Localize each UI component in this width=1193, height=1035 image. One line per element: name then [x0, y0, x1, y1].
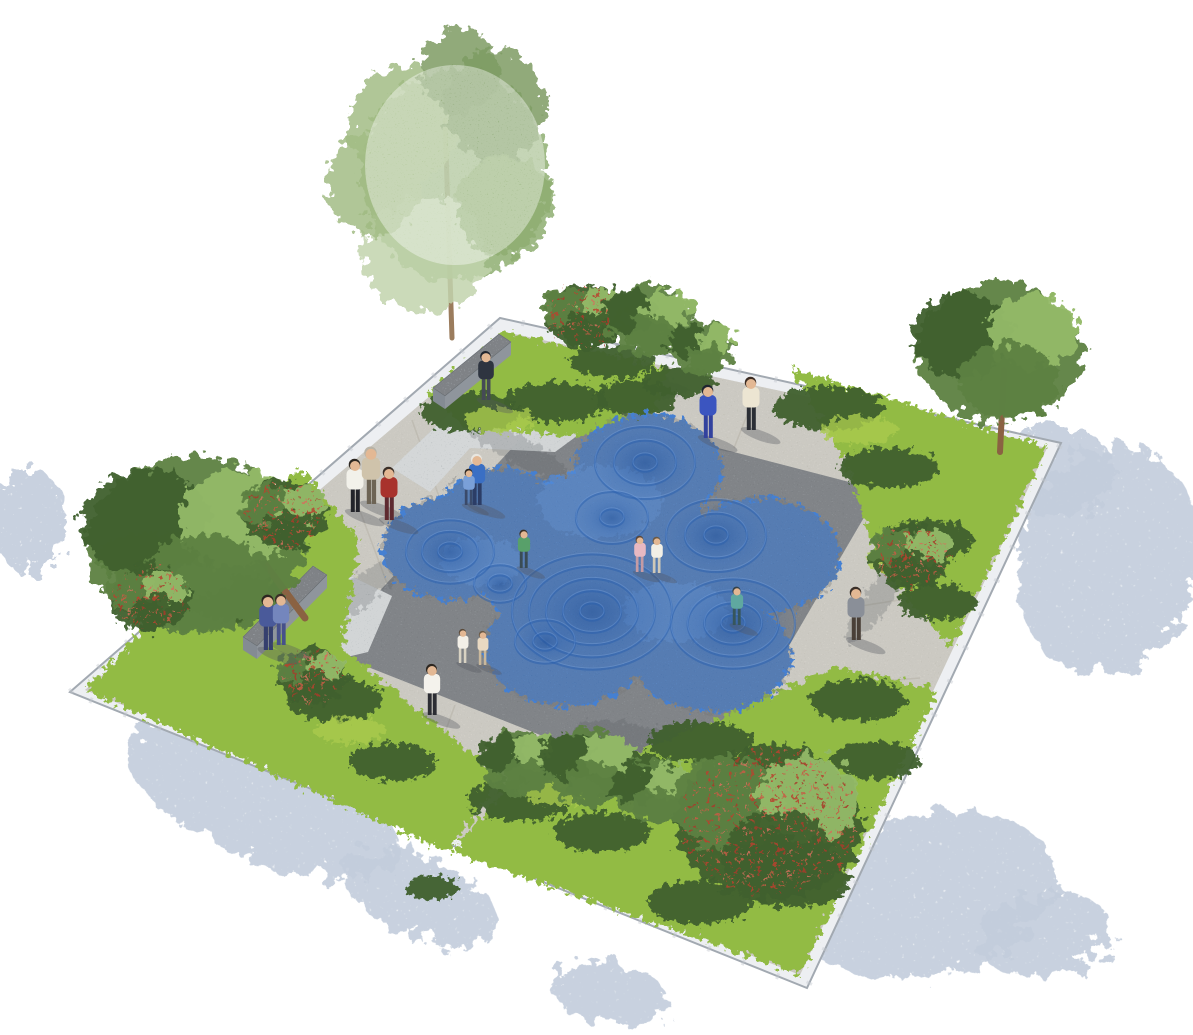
person-at-wall-leg: [487, 378, 491, 400]
child-pair-a-head: [460, 630, 466, 636]
woman-white-top-head: [746, 379, 756, 389]
couple-figure-b-torso: [273, 604, 289, 624]
tree-canopy: [686, 345, 724, 374]
man-walking-leg: [433, 692, 437, 715]
woman-white-top-torso: [743, 387, 760, 408]
woman-red-dress-torso: [381, 477, 398, 498]
child-pair-b-leg: [479, 650, 482, 665]
man-beige-leg: [372, 478, 376, 504]
shrub-clump: [406, 876, 458, 900]
birch-light-speckle: [365, 65, 545, 265]
child-with-photographer-torso: [463, 476, 475, 490]
woman-with-basket-head: [851, 589, 861, 599]
man-beige-torso: [362, 458, 380, 480]
tree-canopy: [958, 344, 1059, 420]
woman-white-top-leg: [752, 406, 756, 430]
man-white-shirt-leg: [356, 488, 360, 512]
man-walking-leg: [428, 692, 432, 715]
child-pair-a-leg: [464, 648, 467, 663]
woman-with-basket-leg: [852, 616, 856, 640]
person-at-wall-leg: [482, 378, 486, 400]
apple-fruit-dots: [112, 567, 188, 629]
grass-tuft: [314, 717, 386, 743]
woman-white-top-leg: [747, 406, 751, 430]
shrub-clump: [348, 743, 436, 781]
woman-with-basket-leg: [857, 616, 861, 640]
child-green-torso: [518, 537, 530, 552]
tree-canopy: [500, 758, 548, 794]
child-pair-b-torso: [478, 637, 489, 650]
child-teal-leg: [738, 608, 741, 625]
person-at-wall-head: [481, 353, 490, 362]
photographer-blue-leg: [478, 482, 482, 505]
plaza-rendering: [0, 0, 1193, 1035]
person-blue-robe-leg: [704, 414, 708, 438]
tree-canopy: [565, 761, 620, 802]
man-walking-torso: [424, 674, 440, 694]
tree-shadow-patch: [0, 468, 66, 572]
birch-tree: [327, 28, 553, 338]
person-blue-robe-leg: [709, 414, 713, 438]
ripple-dish: [664, 497, 769, 575]
child-teal-torso: [731, 594, 743, 609]
child-green-leg: [520, 551, 523, 568]
child-white-torso: [651, 544, 663, 558]
man-white-shirt-head: [350, 461, 360, 471]
child-green-head: [520, 531, 527, 538]
apple-fruit-dots: [681, 749, 860, 896]
child-pair-b-head: [480, 632, 486, 638]
child-pink-leg: [636, 556, 639, 572]
child-teal-head: [733, 588, 740, 595]
child-teal-leg: [733, 608, 736, 625]
child-white-head: [654, 538, 661, 545]
child-pair-a-leg: [459, 648, 462, 663]
tree-shadow-patch: [546, 955, 675, 1035]
photographer-blue-head: [472, 456, 482, 466]
woman-with-basket-torso: [848, 597, 865, 618]
man-beige-leg: [367, 478, 371, 504]
child-green-leg: [525, 551, 528, 568]
apple-fruit-dots: [874, 525, 950, 587]
couple-figure-a-leg: [264, 625, 268, 650]
child-pink-head: [637, 537, 644, 544]
apple-tree: [108, 565, 190, 631]
child-pair-a-torso: [458, 635, 469, 648]
child-pair-b-leg: [484, 650, 487, 665]
plaza-rendering-canvas: [0, 0, 1193, 1035]
couple-figure-b-leg: [282, 622, 286, 645]
child-pink-leg: [641, 556, 644, 572]
child-pink-torso: [634, 543, 646, 557]
couple-figure-a-head: [263, 597, 273, 607]
woman-red-dress-leg: [385, 496, 389, 520]
man-white-shirt-leg: [351, 488, 355, 512]
woman-red-dress-leg: [390, 496, 394, 520]
man-beige-head: [366, 449, 377, 460]
apple-fruit-dots: [245, 482, 325, 548]
person-blue-robe-head: [703, 387, 713, 397]
man-white-shirt-torso: [347, 469, 364, 490]
grass-tuft: [822, 416, 898, 444]
person-blue-robe-torso: [700, 395, 717, 416]
child-white-leg: [658, 557, 661, 573]
woman-red-dress-head: [384, 469, 394, 479]
man-walking-head: [427, 666, 437, 676]
shrub-clump: [838, 448, 938, 488]
child-white-leg: [653, 557, 656, 573]
person-at-wall-torso: [478, 360, 494, 379]
shrub-clump: [898, 584, 978, 620]
couple-figure-a-leg: [269, 625, 273, 650]
couple-figure-b-head: [276, 596, 286, 606]
child-with-photographer-head: [466, 470, 473, 477]
couple-figure-b-leg: [277, 622, 281, 645]
shrub-clump: [810, 679, 906, 721]
child-with-photographer-leg: [465, 489, 468, 505]
child-with-photographer-leg: [470, 489, 473, 505]
